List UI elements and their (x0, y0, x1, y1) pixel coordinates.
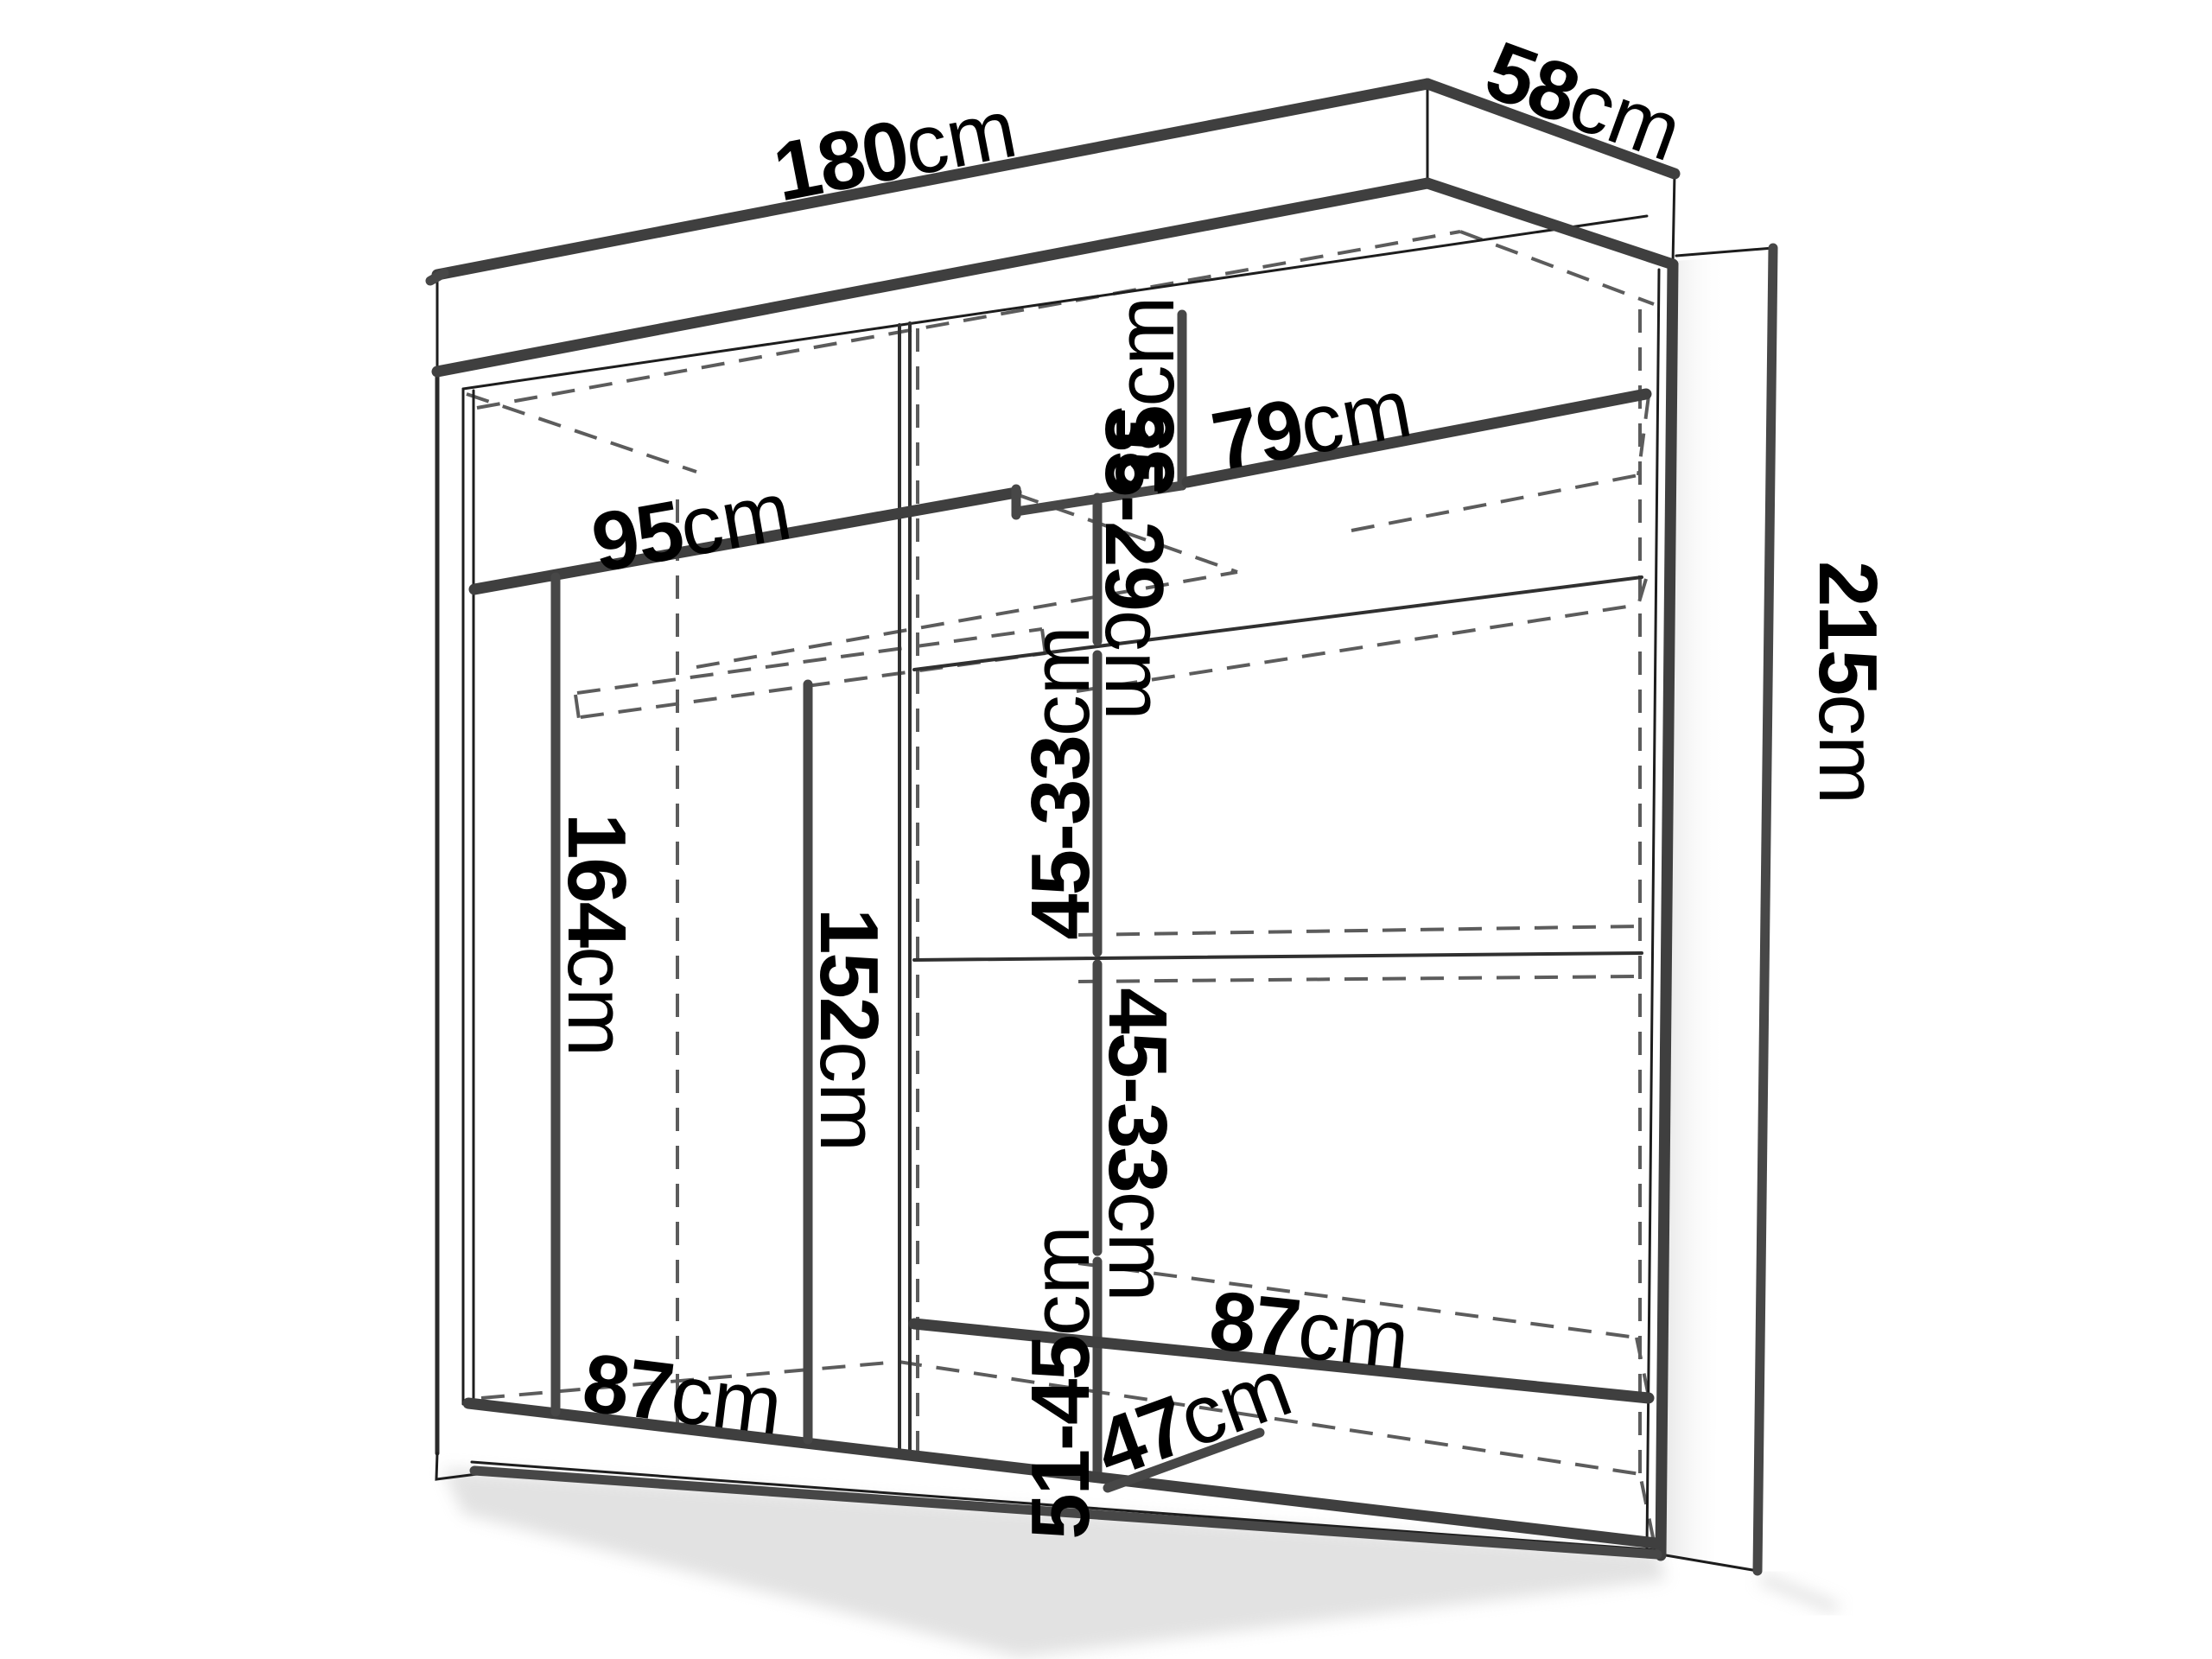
right-shelf-middle-edge (914, 953, 1642, 960)
side-panel-top-edge (1676, 248, 1773, 256)
top-left-depth-dashed (467, 394, 696, 472)
cornice-bottom-front-edge (437, 183, 1427, 372)
panel-bottom-shadow (1761, 1578, 1837, 1609)
label-overall-depth: 58cm (1474, 24, 1693, 179)
label-top-shelf-left: 95cm (585, 464, 798, 589)
diagram-canvas: 180cm 58cm 215cm 95cm 35cm 79cm 35-29cm … (0, 0, 2212, 1659)
label-shelf-left-width: 87cm (578, 1337, 787, 1452)
top-back-right-dashed (1460, 232, 1654, 304)
shelf79-back-dashed (1351, 475, 1638, 531)
side-panel-right-edge (1758, 248, 1773, 1571)
interior-ceiling-edge (463, 216, 1647, 389)
cornice-bottom-right-edge (1427, 183, 1673, 264)
label-hanging-height-mid: 152cm (803, 908, 895, 1152)
label-gap-51-45: 51-45cm (1014, 1225, 1107, 1540)
shelfB-back-upper-dashed (1078, 926, 1638, 935)
label-overall-height: 215cm (1802, 561, 1894, 804)
label-bottom-depth: 47cm (1084, 1341, 1302, 1496)
shelfB-back-lower-dashed (1078, 976, 1638, 982)
label-top-shelf-right: 79cm (1205, 361, 1418, 488)
top-left-bevel (430, 273, 444, 281)
cornice-back-right-end (1673, 174, 1675, 264)
label-overall-width: 180cm (766, 82, 1023, 219)
label-gap-45-33-upper: 45-33cm (1014, 626, 1107, 940)
label-hanging-height-left: 164cm (550, 813, 643, 1057)
body-left-foot (436, 1453, 477, 1479)
rod-end-left-dashed (575, 695, 579, 719)
wardrobe-dimension-diagram: 180cm 58cm 215cm 95cm 35cm 79cm 35-29cm … (0, 0, 2212, 1659)
